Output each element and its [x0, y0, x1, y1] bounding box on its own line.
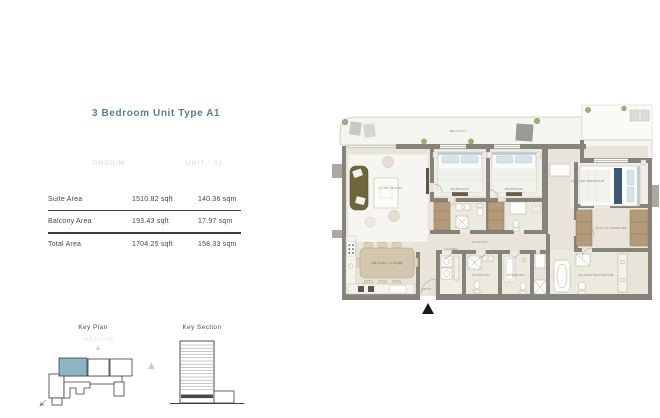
lounge-mat — [363, 123, 375, 137]
area-sqft: 1510.82 sqft — [132, 196, 198, 203]
area-sqft: 193.43 sqft — [132, 218, 198, 225]
armchair — [383, 157, 394, 168]
svg-text:BALCONY: BALCONY — [450, 129, 467, 133]
svg-text:KITCHEN / DINING: KITCHEN / DINING — [372, 261, 403, 265]
key-plan-title: Key Plan — [58, 324, 128, 331]
table-row: Suite Area 1510.82 sqft 140.36 sqm — [48, 189, 241, 211]
lounge-mat-dark — [515, 123, 533, 141]
svg-text:MASTER BEDROOM: MASTER BEDROOM — [571, 179, 604, 183]
key-section-drawing — [168, 333, 248, 415]
svg-text:HALLWAY: HALLWAY — [472, 240, 488, 244]
svg-text:BATHROOM: BATHROOM — [507, 273, 525, 277]
area-sqft: 1704.25 sqft — [132, 241, 198, 248]
svg-text:ENTRY: ENTRY — [422, 287, 432, 291]
svg-text:BEDROOM: BEDROOM — [451, 187, 469, 191]
key-plan-highlighted-unit — [59, 358, 87, 376]
svg-text:BATHROOM: BATHROOM — [472, 273, 490, 277]
bed-1 — [433, 152, 487, 192]
dresser — [506, 192, 522, 196]
floor-plan-drawing: BALCONY — [330, 100, 660, 318]
level-label: PODIUM — [93, 160, 125, 167]
entrance-marker-icon — [422, 303, 434, 314]
dresser — [452, 192, 468, 196]
armchair — [389, 211, 400, 222]
table-row: Balcony Area 193.43 sqft 17.97 sqm — [48, 211, 241, 234]
lounge-mat — [349, 121, 362, 135]
page-title: 3 Bedroom Unit Type A1 — [92, 108, 220, 119]
coffee-table — [374, 178, 398, 208]
key-section-highlighted-floor — [181, 395, 213, 399]
svg-text:LIVING ROOM: LIVING ROOM — [378, 186, 402, 190]
table-row: Total Area 1704.25 sqft 158.33 sqm — [48, 234, 241, 255]
area-label: Total Area — [48, 241, 132, 248]
key-section-title: Key Section — [167, 324, 237, 331]
svg-text:BEDROOM: BEDROOM — [505, 187, 523, 191]
brochure-page: 3 Bedroom Unit Type A1 PODIUM UNIT - 03 … — [0, 0, 660, 418]
area-label: Balcony Area — [48, 218, 132, 225]
section-marker-icon: ▲ — [146, 361, 157, 372]
bed-2 — [487, 152, 541, 192]
svg-text:WALK-IN WARDROBE: WALK-IN WARDROBE — [595, 226, 627, 230]
area-table: Suite Area 1510.82 sqft 140.36 sqm Balco… — [48, 189, 241, 255]
unit-number-label: UNIT - 03 — [186, 160, 223, 167]
area-sqm: 140.36 sqm — [198, 196, 241, 203]
tv-console — [426, 168, 429, 194]
key-plan-drawing — [30, 354, 142, 414]
master-bed — [580, 160, 646, 206]
svg-text:MASTER BATHROOM: MASTER BATHROOM — [578, 273, 613, 277]
area-sqm: 158.33 sqm — [198, 241, 241, 248]
armchair — [365, 217, 375, 227]
area-label: Suite Area — [48, 196, 132, 203]
svg-text:LAUNDRY: LAUNDRY — [444, 247, 458, 251]
orientation-arrow-icon — [40, 400, 46, 406]
area-sqm: 17.97 sqm — [198, 218, 241, 225]
north-marker-icon: ▲ — [94, 344, 102, 352]
